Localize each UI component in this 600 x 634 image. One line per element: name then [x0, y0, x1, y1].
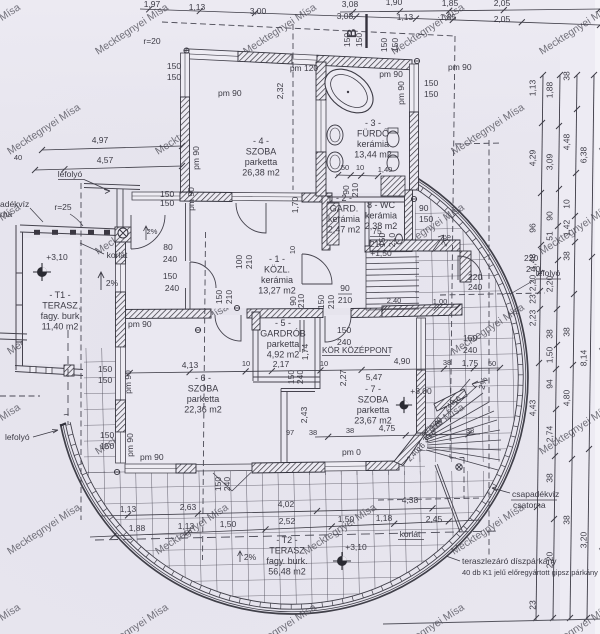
svg-text:97: 97 [286, 428, 294, 437]
svg-text:240: 240 [163, 254, 177, 264]
svg-text:2,05: 2,05 [494, 14, 511, 24]
svg-text:210: 210 [296, 294, 306, 308]
svg-text:1,42: 1,42 [562, 219, 572, 236]
svg-text:pm 90: pm 90 [448, 62, 472, 72]
svg-text:+3,10: +3,10 [46, 252, 68, 262]
svg-text:2,52: 2,52 [279, 516, 296, 526]
svg-text:pm 90: pm 90 [125, 433, 135, 457]
svg-text:1,13: 1,13 [189, 2, 206, 12]
svg-text:56,48 m2: 56,48 m2 [268, 567, 306, 577]
svg-text:150: 150 [316, 295, 326, 309]
svg-text:38: 38 [346, 426, 354, 435]
svg-text:90: 90 [340, 283, 350, 293]
svg-text:2,32: 2,32 [275, 82, 285, 99]
svg-text:150: 150 [163, 271, 177, 281]
svg-text:4,48: 4,48 [562, 133, 572, 150]
svg-text:210: 210 [244, 255, 254, 269]
svg-text:- 4 -: - 4 - [253, 136, 269, 146]
svg-text:- 3 -: - 3 - [365, 118, 381, 128]
svg-text:38: 38 [443, 358, 451, 367]
svg-text:2,05: 2,05 [494, 0, 511, 8]
svg-text:TERASZ: TERASZ [42, 301, 78, 311]
svg-text:10: 10 [562, 199, 572, 209]
svg-text:lefolyó: lefolyó [5, 432, 30, 442]
svg-text:2,27: 2,27 [338, 369, 348, 386]
svg-text:parketta: parketta [187, 394, 220, 404]
svg-text:38: 38 [562, 251, 572, 261]
svg-text:4,43: 4,43 [528, 399, 538, 416]
svg-text:240: 240 [337, 337, 351, 347]
svg-text:150: 150 [342, 33, 352, 47]
svg-text:210: 210 [338, 295, 352, 305]
svg-text:csatorna: csatorna [513, 500, 546, 510]
svg-text:150: 150 [160, 198, 174, 208]
svg-text:23: 23 [528, 600, 538, 610]
svg-text:150: 150 [337, 325, 351, 335]
svg-text:40: 40 [14, 153, 22, 162]
svg-text:rna: rna [0, 209, 13, 219]
svg-text:4,80: 4,80 [562, 389, 572, 406]
svg-text:GARDRÓB: GARDRÓB [260, 329, 306, 339]
svg-text:pm 90: pm 90 [396, 81, 406, 105]
svg-text:94: 94 [545, 379, 555, 389]
svg-text:kerámia: kerámia [357, 139, 389, 149]
svg-text:pm 90: pm 90 [140, 452, 164, 462]
svg-text:10: 10 [320, 359, 328, 368]
svg-text:4,92 m2: 4,92 m2 [267, 350, 300, 360]
svg-text:SZOBA: SZOBA [358, 395, 389, 405]
svg-text:50: 50 [341, 163, 349, 172]
svg-text:80: 80 [163, 242, 173, 252]
svg-text:150: 150 [98, 364, 112, 374]
svg-text:SZOBA: SZOBA [188, 384, 219, 394]
svg-text:210: 210 [224, 290, 234, 304]
svg-text:150: 150 [424, 78, 438, 88]
svg-text:1,70: 1,70 [290, 196, 300, 213]
svg-text:1,88: 1,88 [545, 81, 555, 98]
svg-text:4,29: 4,29 [528, 149, 538, 166]
svg-text:1,97: 1,97 [144, 0, 161, 9]
svg-text:240: 240 [222, 477, 232, 491]
svg-text:- 6 -: - 6 - [195, 373, 211, 383]
svg-text:2%: 2% [147, 227, 158, 236]
svg-text:4,13: 4,13 [182, 360, 199, 370]
svg-text:pm 0: pm 0 [342, 447, 361, 457]
svg-text:150: 150 [100, 441, 114, 451]
svg-text:2,43: 2,43 [299, 406, 309, 423]
svg-text:KÖR KÖZÉPPONT: KÖR KÖZÉPPONT [322, 345, 393, 355]
svg-text:1,13: 1,13 [120, 504, 137, 514]
svg-text:- T1 -: - T1 - [49, 290, 70, 300]
svg-text:pm 90: pm 90 [128, 319, 152, 329]
svg-text:2,23: 2,23 [528, 309, 538, 326]
svg-text:38: 38 [545, 329, 555, 339]
svg-text:1,13: 1,13 [397, 12, 414, 22]
svg-text:210: 210 [387, 233, 397, 247]
svg-text:kerámia: kerámia [261, 275, 293, 285]
svg-text:2,40: 2,40 [387, 296, 402, 305]
svg-text:4,90: 4,90 [394, 356, 411, 366]
svg-text:150: 150 [167, 72, 181, 82]
svg-text:100: 100 [234, 255, 244, 269]
svg-text:- 2 -: - 2 - [336, 193, 352, 203]
svg-text:220: 220 [524, 253, 538, 263]
svg-text:pm 90: pm 90 [186, 187, 196, 211]
svg-text:240: 240 [526, 264, 540, 274]
svg-text:1,50: 1,50 [545, 346, 555, 363]
svg-text:r=20: r=20 [143, 36, 161, 46]
svg-text:- 7 -: - 7 - [365, 384, 381, 394]
svg-text:2,63: 2,63 [180, 502, 197, 512]
svg-text:1,18: 1,18 [376, 513, 393, 523]
svg-text:38: 38 [562, 71, 572, 81]
svg-text:teraszlezáró díszpárkány: teraszlezáró díszpárkány [462, 556, 557, 566]
svg-text:240: 240 [295, 370, 305, 384]
svg-text:10: 10 [242, 359, 250, 368]
svg-text:- 5 -: - 5 - [275, 318, 291, 328]
svg-text:13,44 m2: 13,44 m2 [354, 150, 392, 160]
svg-text:3,00: 3,00 [250, 6, 267, 16]
svg-text:240: 240 [468, 282, 482, 292]
svg-text:+1,50: +1,50 [370, 248, 392, 258]
svg-text:38: 38 [562, 327, 572, 337]
svg-text:150: 150 [354, 33, 364, 47]
svg-text:2,45: 2,45 [426, 514, 443, 524]
svg-text:51: 51 [545, 231, 555, 241]
svg-text:GARD.: GARD. [330, 204, 359, 214]
svg-text:korlát: korlát [107, 250, 128, 260]
svg-text:+3,00: +3,00 [410, 386, 432, 396]
svg-text:150: 150 [214, 290, 224, 304]
svg-text:2,17: 2,17 [273, 359, 290, 369]
svg-text:6,38: 6,38 [579, 146, 589, 163]
svg-text:pm 90: pm 90 [379, 69, 403, 79]
svg-text:4,75: 4,75 [379, 423, 396, 433]
svg-text:38: 38 [562, 515, 572, 525]
svg-text:adékvíz: adékvíz [0, 199, 29, 209]
svg-text:38: 38 [545, 473, 555, 483]
svg-text:korlát: korlát [400, 529, 421, 539]
svg-text:150: 150 [167, 61, 181, 71]
svg-text:1,13: 1,13 [528, 79, 538, 96]
svg-text:40 db K1 jelű előregyártott gi: 40 db K1 jelű előregyártott gipsz párkán… [462, 568, 598, 577]
svg-text:FÜRDŐ: FÜRDŐ [357, 129, 389, 139]
svg-text:kerámia: kerámia [365, 211, 397, 221]
svg-text:4,02: 4,02 [278, 499, 295, 509]
svg-text:2,47 m2: 2,47 m2 [328, 225, 361, 235]
svg-text:csapadékvíz: csapadékvíz [512, 489, 559, 499]
svg-text:210: 210 [326, 295, 336, 309]
svg-text:- T2 -: - T2 - [276, 535, 297, 545]
svg-text:1,74: 1,74 [300, 343, 310, 360]
svg-text:8 - WC: 8 - WC [367, 200, 395, 210]
svg-text:1,90: 1,90 [386, 0, 403, 7]
svg-text:10: 10 [288, 246, 297, 254]
svg-text:90: 90 [419, 203, 429, 213]
svg-text:TERASZ: TERASZ [269, 546, 305, 556]
svg-text:38: 38 [466, 426, 474, 435]
svg-text:150: 150 [424, 89, 438, 99]
svg-text:r=25: r=25 [54, 202, 72, 212]
svg-text:KÖZL.: KÖZL. [264, 265, 290, 275]
svg-text:parketta: parketta [357, 405, 390, 415]
svg-text:4,97: 4,97 [92, 135, 109, 145]
svg-text:pm 90: pm 90 [123, 370, 133, 394]
svg-text:4,57: 4,57 [97, 155, 114, 165]
svg-text:pm 90: pm 90 [218, 88, 242, 98]
svg-text:150: 150 [379, 38, 389, 52]
svg-text:50: 50 [488, 359, 496, 368]
svg-text:1,50: 1,50 [338, 514, 355, 524]
svg-text:1,85: 1,85 [440, 12, 457, 22]
svg-text:fagy. burk: fagy. burk [41, 311, 80, 321]
svg-text:26,38 m2: 26,38 m2 [242, 168, 280, 178]
svg-text:150: 150 [419, 214, 433, 224]
svg-text:10: 10 [356, 163, 364, 172]
svg-text:8,14: 8,14 [579, 349, 589, 366]
svg-text:23: 23 [528, 294, 538, 304]
svg-text:1,00: 1,00 [433, 297, 448, 306]
svg-text:lefolyó: lefolyó [58, 169, 83, 179]
svg-text:240: 240 [463, 345, 477, 355]
svg-text:parketta: parketta [245, 157, 278, 167]
svg-text:pm 120: pm 120 [290, 63, 319, 73]
svg-text:38: 38 [309, 428, 317, 437]
svg-text:150: 150 [463, 333, 477, 343]
svg-text:96: 96 [528, 223, 538, 233]
svg-text:+3,10: +3,10 [345, 542, 367, 552]
svg-text:parketta: parketta [267, 339, 300, 349]
svg-text:150: 150 [100, 430, 114, 440]
svg-text:1,40: 1,40 [378, 165, 393, 174]
svg-text:150: 150 [390, 38, 400, 52]
svg-text:2%: 2% [106, 278, 119, 288]
svg-text:3,20: 3,20 [579, 531, 589, 548]
svg-text:fagy. burk.: fagy. burk. [266, 556, 307, 566]
svg-text:3,09: 3,09 [545, 153, 555, 170]
svg-text:1,50: 1,50 [220, 519, 237, 529]
svg-text:2%: 2% [244, 552, 257, 562]
svg-text:3,08: 3,08 [337, 11, 354, 21]
svg-text:4,38: 4,38 [402, 495, 419, 505]
svg-text:1,88: 1,88 [129, 523, 146, 533]
svg-text:SZOBA: SZOBA [246, 147, 277, 157]
svg-text:150: 150 [377, 233, 387, 247]
svg-text:2,74: 2,74 [545, 425, 555, 442]
svg-text:13,27 m2: 13,27 m2 [258, 286, 296, 296]
svg-text:kerámia: kerámia [328, 214, 360, 224]
svg-text:pm 90: pm 90 [191, 146, 201, 170]
svg-text:1,85: 1,85 [442, 0, 459, 8]
svg-text:3,08: 3,08 [342, 0, 359, 9]
svg-text:22,36 m2: 22,36 m2 [184, 405, 222, 415]
svg-text:90: 90 [545, 211, 555, 221]
svg-text:150: 150 [98, 375, 112, 385]
svg-text:240: 240 [165, 283, 179, 293]
svg-text:5,47: 5,47 [366, 372, 383, 382]
svg-text:1,13: 1,13 [178, 521, 195, 531]
svg-text:- 1 -: - 1 - [269, 254, 285, 264]
svg-text:220: 220 [468, 272, 482, 282]
svg-text:11,40 m2: 11,40 m2 [42, 322, 79, 332]
